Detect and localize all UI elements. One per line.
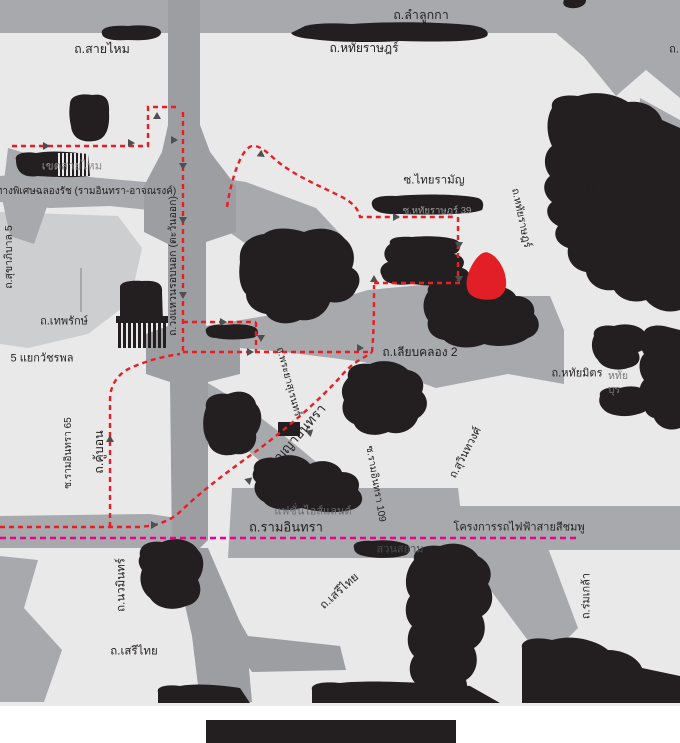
landmark-blob-top-left (102, 25, 161, 40)
logo-bar (206, 720, 456, 743)
landmark-blob-lamlukka (291, 22, 488, 42)
map-canvas: ถ.ลำลูกกาถ.สายไหมถ.หทัยราษฎร์เขตสายไหมทา… (0, 0, 680, 706)
map-graphics (0, 0, 680, 706)
landmark-sign-hathairat39 (372, 195, 483, 215)
landmark-blob-east-suren (342, 361, 427, 435)
map-screenshot: ถ.ลำลูกกาถ.สายไหมถ.หทัยราษฎร์เขตสายไหมทา… (0, 0, 680, 743)
comb-base (116, 316, 168, 323)
landmark-building-saimai (69, 94, 109, 141)
landmark-rect-small (278, 422, 300, 436)
landmark-sign-small (206, 324, 258, 339)
landmark-suan-siam (354, 540, 410, 558)
landmark-comb-building (120, 281, 163, 322)
landmark-hathai-blob-lower (599, 386, 651, 416)
landmark-blob-round (203, 392, 261, 456)
